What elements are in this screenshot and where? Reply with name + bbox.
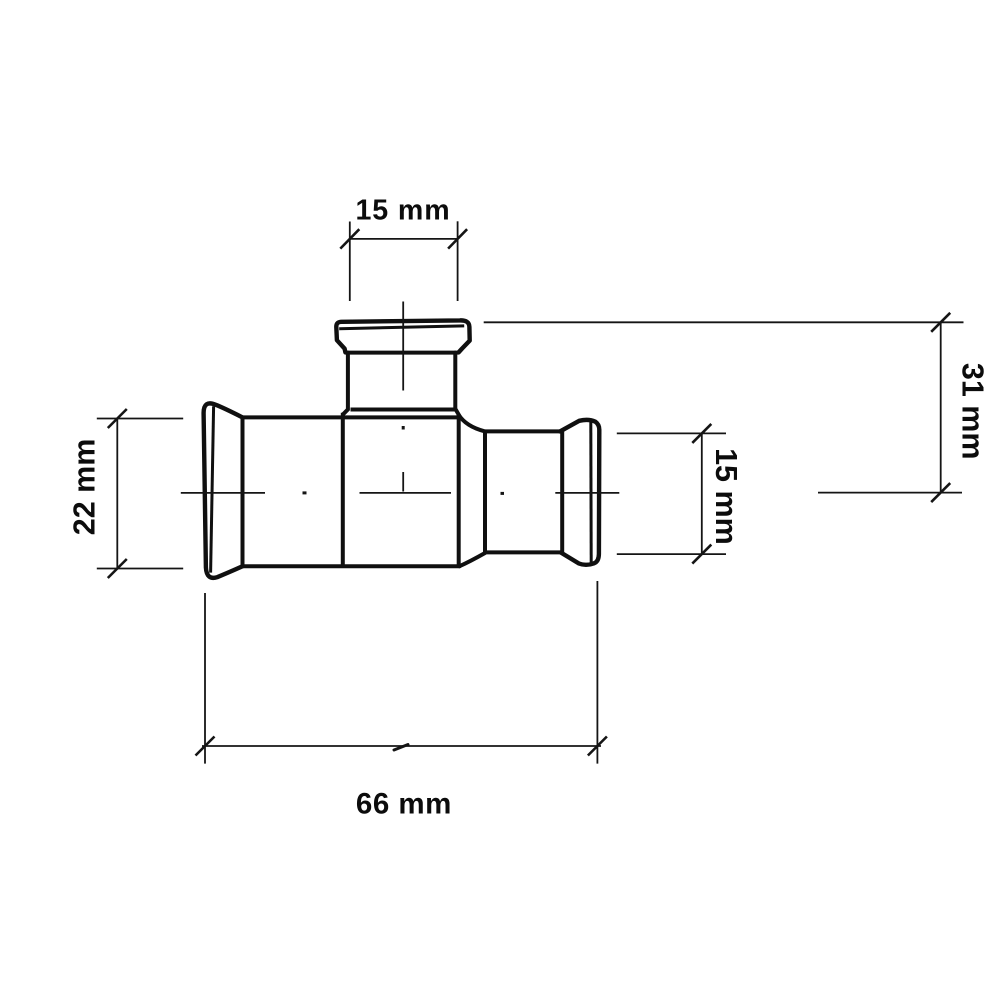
svg-text:66 mm: 66 mm (356, 788, 452, 821)
svg-text:31 mm: 31 mm (956, 363, 990, 460)
svg-text:15 mm: 15 mm (355, 195, 450, 227)
svg-text:22 mm: 22 mm (68, 439, 102, 536)
svg-text:15 mm: 15 mm (709, 448, 743, 545)
